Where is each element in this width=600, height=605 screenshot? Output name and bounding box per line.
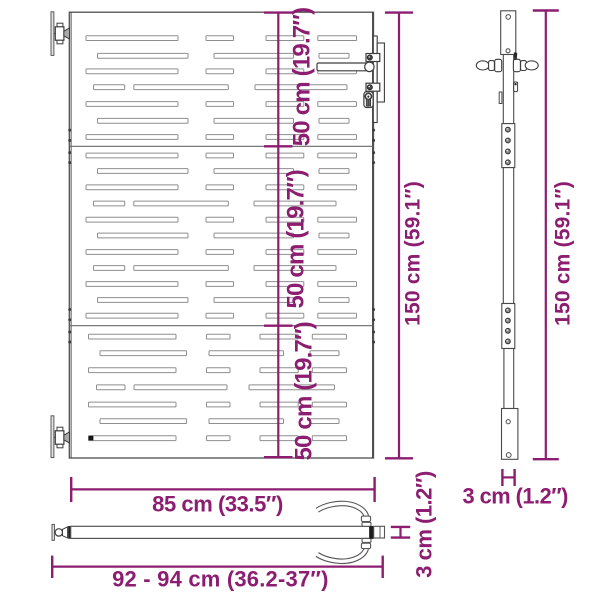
svg-text:3 cm (1.2″): 3 cm (1.2″) bbox=[412, 471, 437, 578]
svg-text:150 cm (59.1″): 150 cm (59.1″) bbox=[552, 181, 575, 326]
svg-text:92 - 94 cm (36.2-37″): 92 - 94 cm (36.2-37″) bbox=[112, 566, 329, 591]
svg-text:50 cm (19.7″): 50 cm (19.7″) bbox=[291, 322, 318, 461]
svg-text:50 cm (19.7″): 50 cm (19.7″) bbox=[288, 8, 315, 147]
svg-text:3 cm (1.2″): 3 cm (1.2″) bbox=[462, 483, 568, 508]
svg-text:150 cm (59.1″): 150 cm (59.1″) bbox=[402, 181, 425, 326]
svg-text:50 cm (19.7″): 50 cm (19.7″) bbox=[282, 170, 309, 309]
svg-text:85 cm (33.5″): 85 cm (33.5″) bbox=[152, 491, 283, 516]
